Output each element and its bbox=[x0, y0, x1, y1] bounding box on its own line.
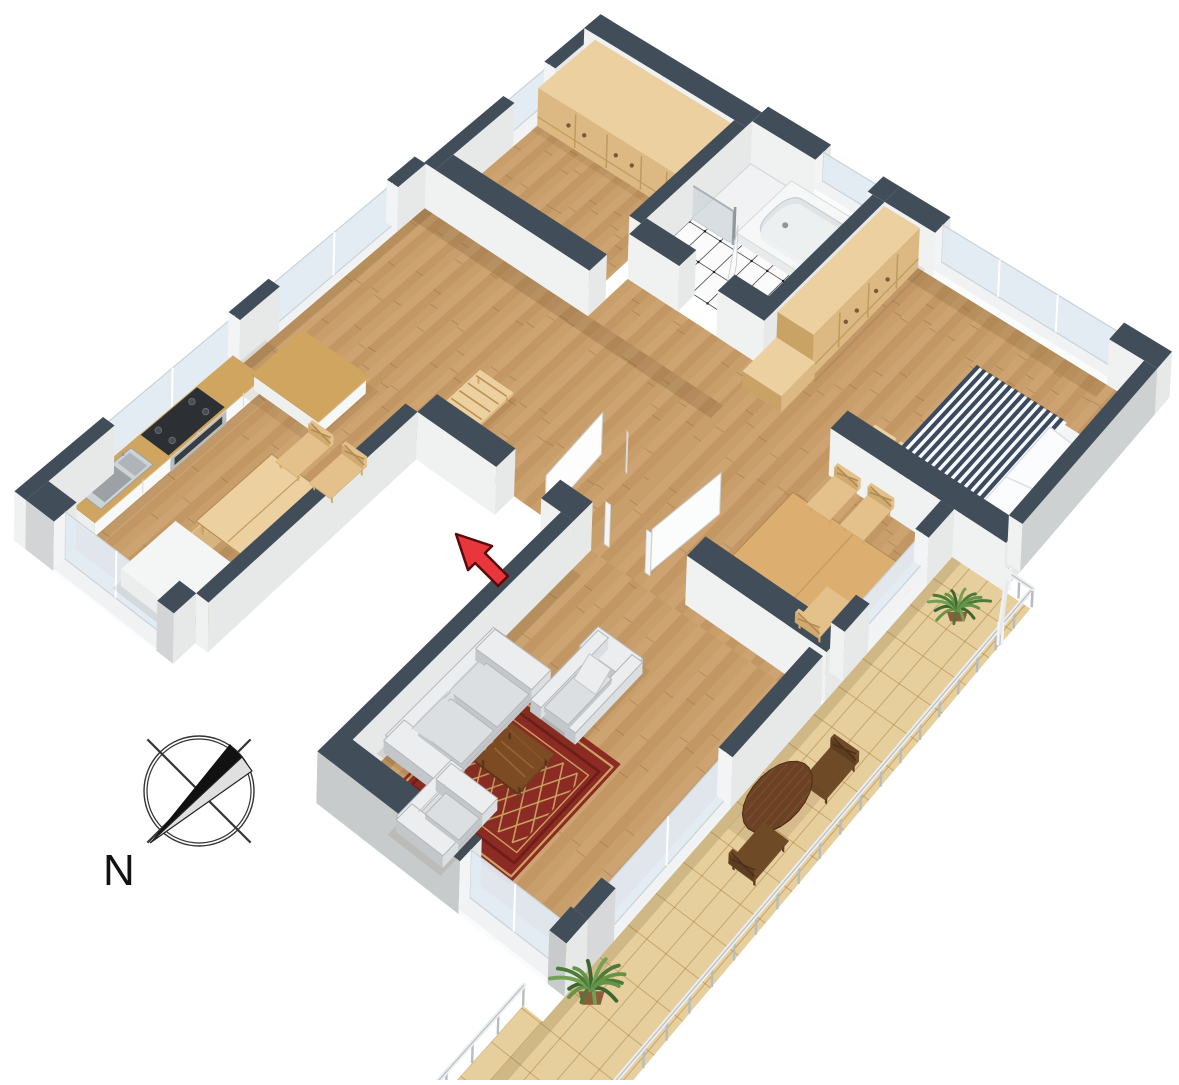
svg-text:N: N bbox=[103, 846, 135, 895]
